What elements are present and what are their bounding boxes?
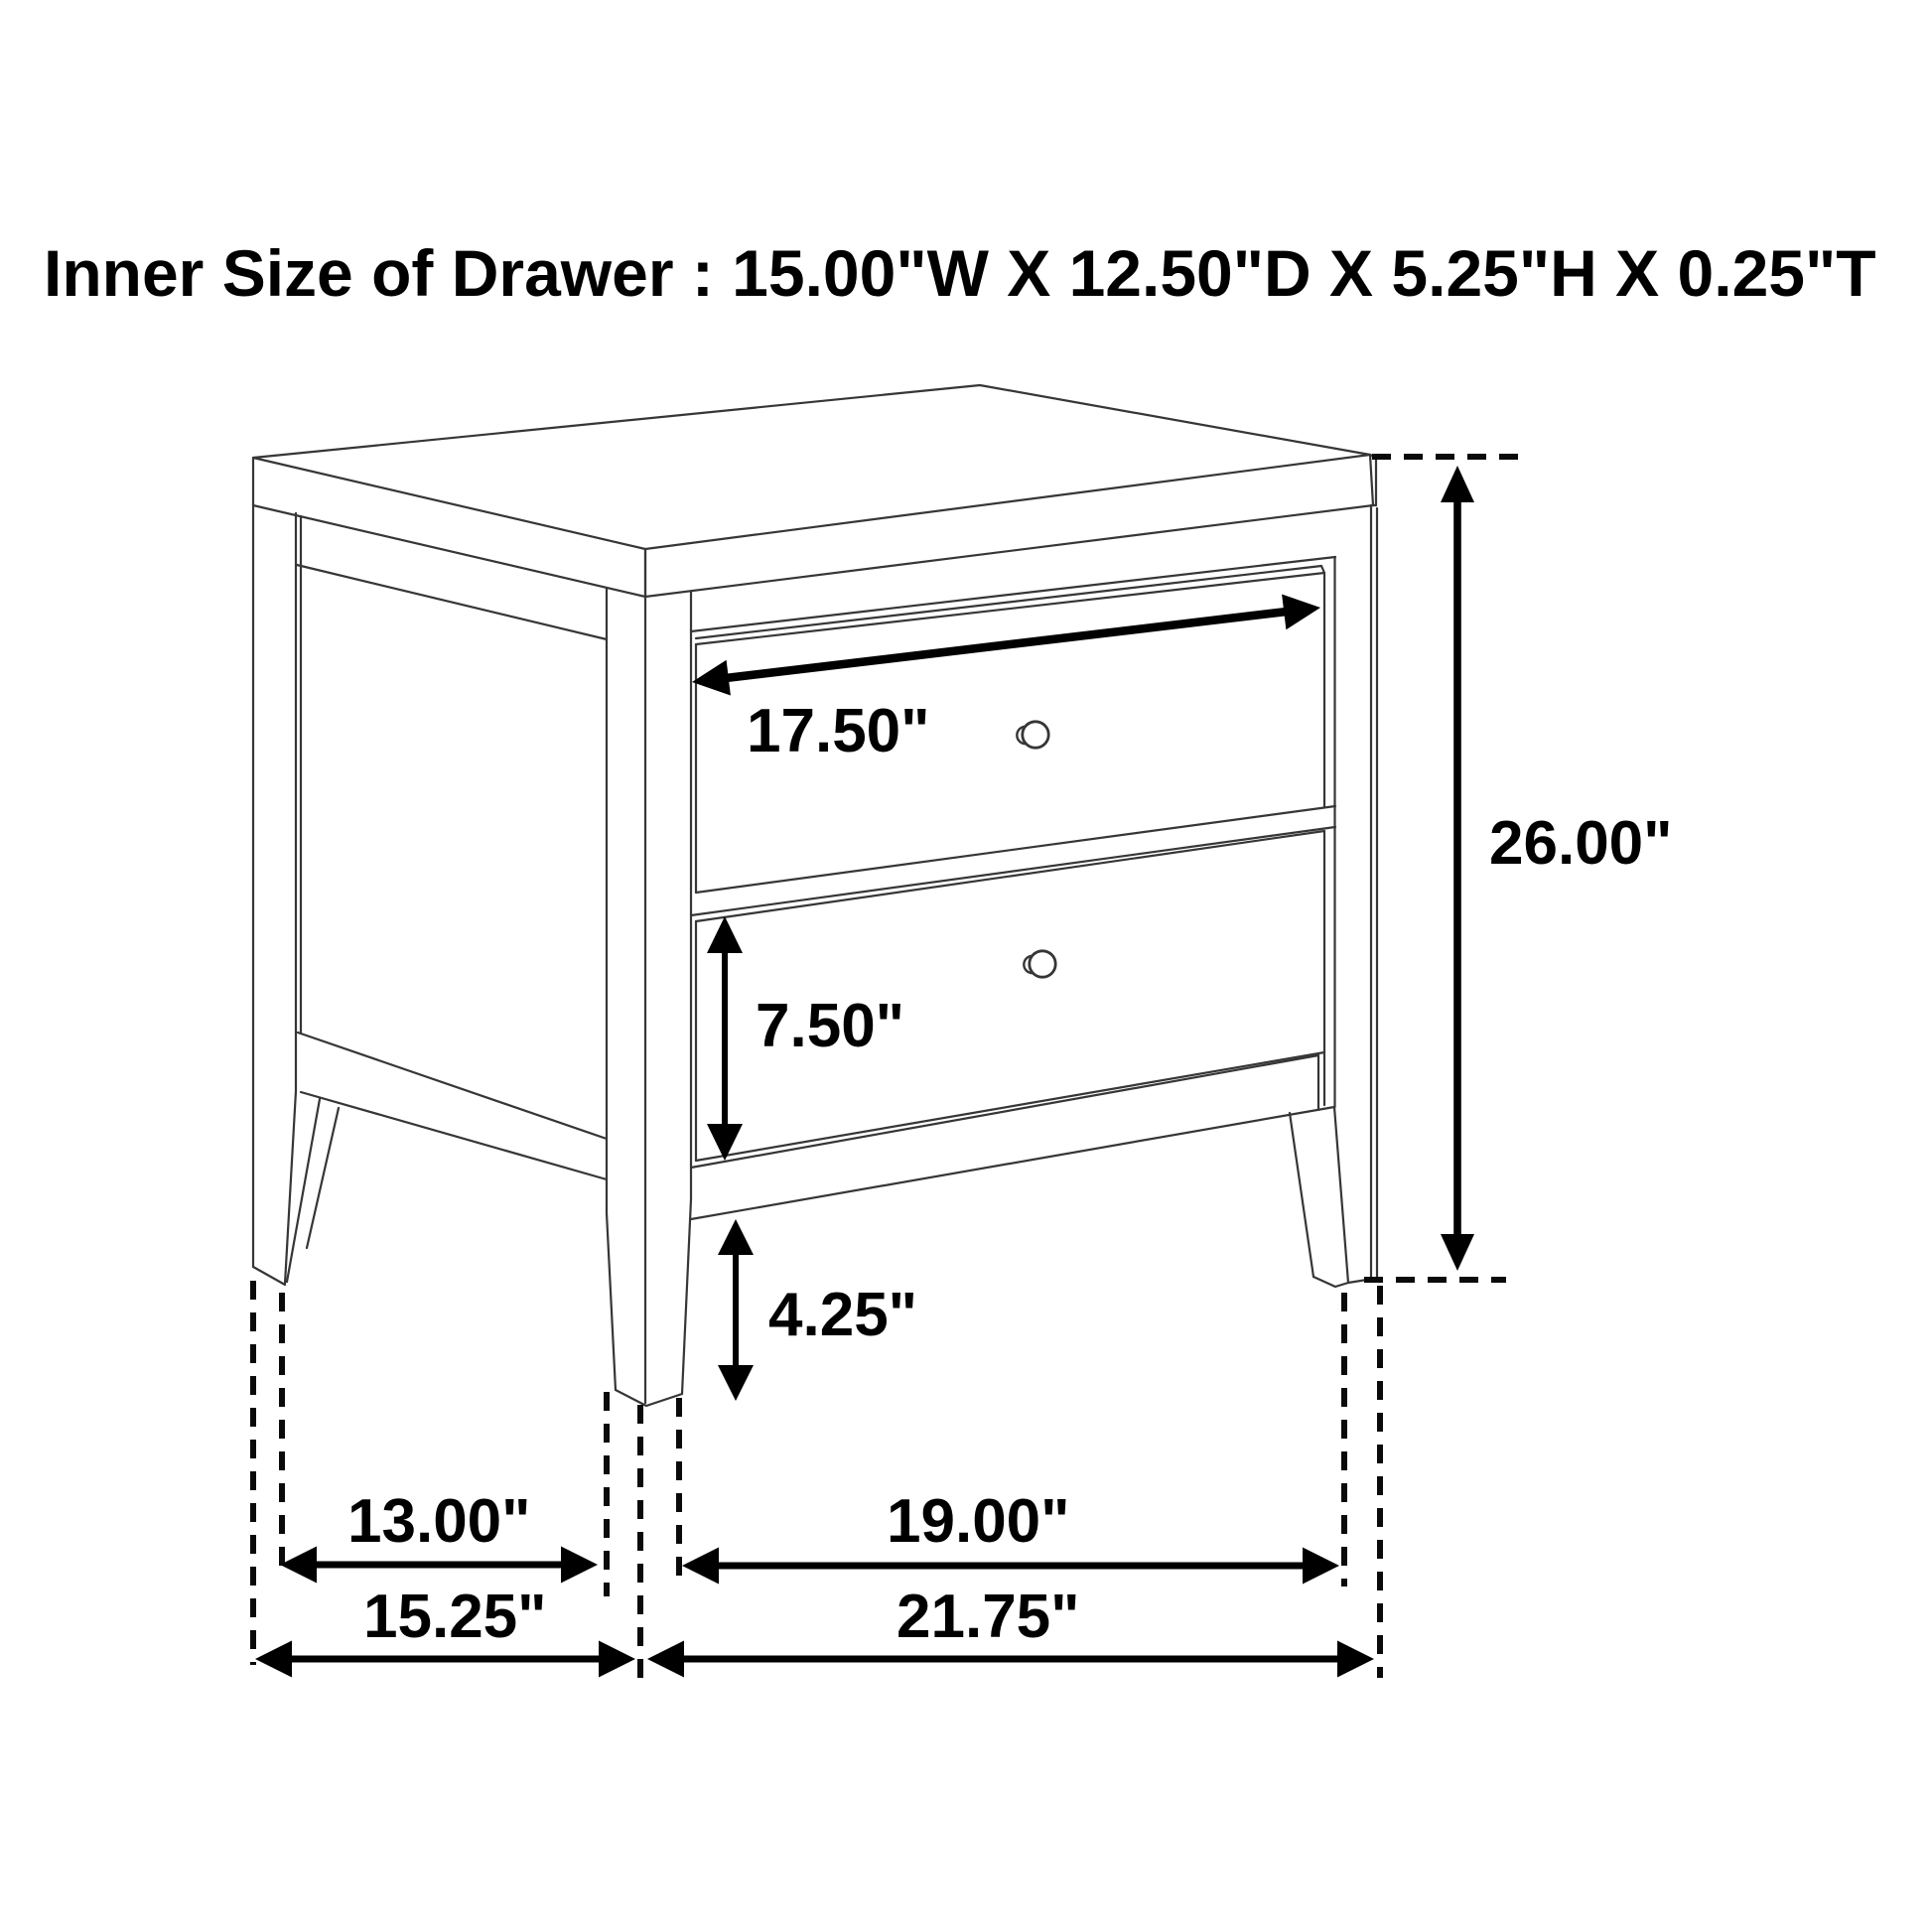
svg-text:17.50": 17.50": [747, 697, 930, 765]
svg-text:7.50": 7.50": [756, 992, 904, 1060]
svg-text:15.25": 15.25": [363, 1583, 547, 1651]
svg-text:13.00": 13.00": [347, 1487, 531, 1556]
svg-text:Inner Size of Drawer : 15.00"W: Inner Size of Drawer : 15.00"W X 12.50"D…: [44, 236, 1876, 310]
svg-text:26.00": 26.00": [1489, 809, 1673, 878]
svg-text:4.25": 4.25": [768, 1281, 917, 1349]
svg-text:19.00": 19.00": [887, 1487, 1070, 1556]
svg-text:21.75": 21.75": [897, 1583, 1080, 1651]
